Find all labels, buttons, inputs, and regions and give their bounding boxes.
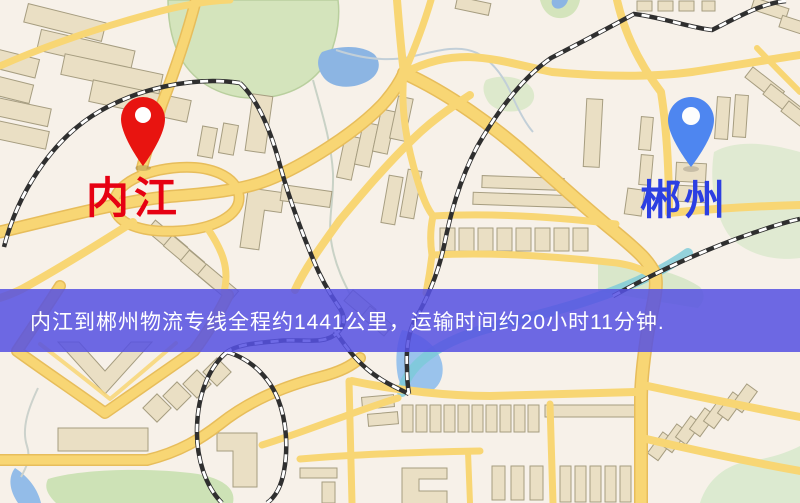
destination-city-label: 郴州 bbox=[640, 180, 728, 221]
map-canvas bbox=[0, 0, 800, 503]
route-info-banner: 内江到郴州物流专线全程约1441公里，运输时间约20小时11分钟. bbox=[0, 289, 800, 352]
origin-city-label: 内江 bbox=[86, 178, 182, 221]
route-info-text: 内江到郴州物流专线全程约1441公里，运输时间约20小时11分钟. bbox=[30, 306, 665, 336]
map-screenshot: 内江 郴州 内江到郴州物流专线全程约1441公里，运输时间约20小时11分钟. bbox=[0, 0, 800, 503]
